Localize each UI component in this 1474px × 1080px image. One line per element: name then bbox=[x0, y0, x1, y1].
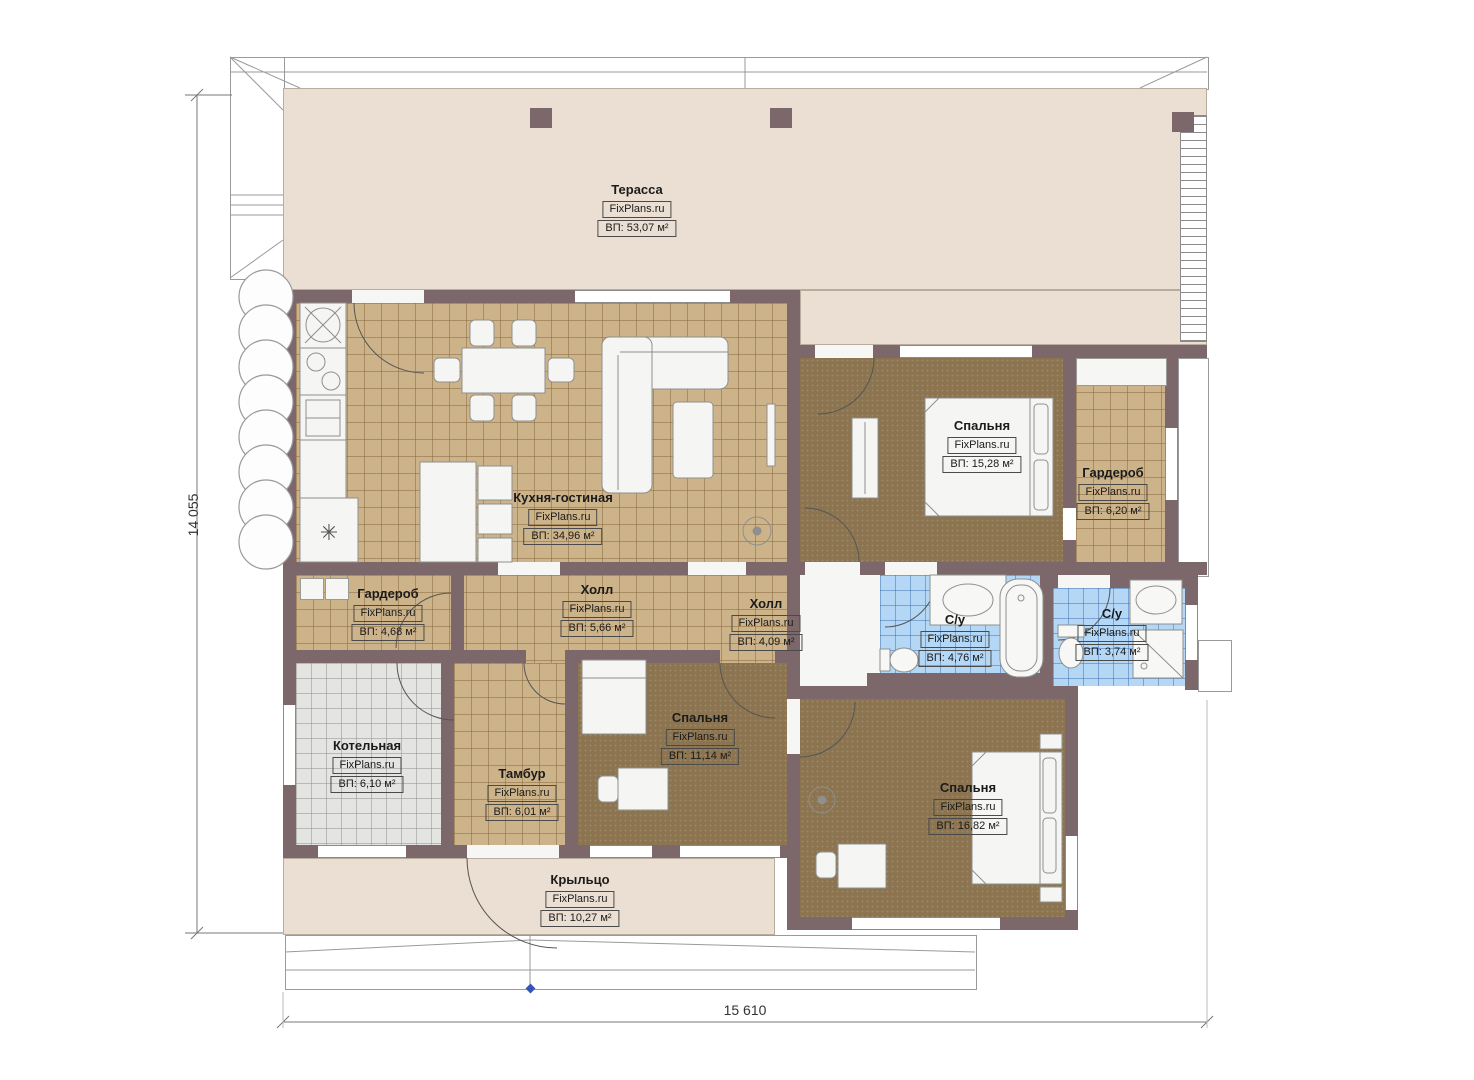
room-area: ВП: 16,82 м² bbox=[928, 818, 1007, 835]
room-name: Холл bbox=[729, 596, 802, 611]
chair-icon bbox=[816, 852, 836, 878]
door-arc-bedroom1 bbox=[818, 358, 874, 414]
bedroom2-furniture bbox=[582, 660, 668, 810]
room-label-terrace: Терасса FixPlans.ru ВП: 53,07 м² bbox=[597, 182, 676, 237]
room-name: Кухня-гостиная bbox=[513, 490, 613, 505]
room-name: Тамбур bbox=[485, 766, 558, 781]
chair-icon bbox=[598, 776, 618, 802]
room-name: Гардероб bbox=[351, 586, 424, 601]
room-name: Котельная bbox=[330, 738, 403, 753]
drawing-overlay: ✳ bbox=[0, 0, 1474, 1080]
room-area: ВП: 5,66 м² bbox=[560, 620, 633, 637]
watermark: FixPlans.ru bbox=[602, 201, 671, 218]
level-marker-icon bbox=[526, 984, 536, 994]
room-label-wardrobe2: Гардероб FixPlans.ru ВП: 4,68 м² bbox=[351, 586, 424, 641]
watermark: FixPlans.ru bbox=[487, 785, 556, 802]
room-name: Холл bbox=[560, 582, 633, 597]
chair-icon bbox=[470, 320, 494, 346]
room-label-hall2: Холл FixPlans.ru ВП: 4,09 м² bbox=[729, 596, 802, 651]
pillow-icon bbox=[1034, 404, 1048, 454]
watermark: FixPlans.ru bbox=[528, 509, 597, 526]
coffee-table-icon bbox=[673, 402, 713, 478]
watermark: FixPlans.ru bbox=[1077, 625, 1146, 642]
room-label-bedroom2: Спальня FixPlans.ru ВП: 11,14 м² bbox=[661, 710, 739, 765]
door-arc-tambour bbox=[524, 663, 565, 704]
toilet-icon bbox=[890, 648, 918, 672]
kitchen-island-icon bbox=[420, 462, 476, 562]
toilet-tank-icon bbox=[880, 649, 890, 671]
room-name: Терасса bbox=[597, 182, 676, 197]
room-area: ВП: 6,10 м² bbox=[330, 776, 403, 793]
room-area: ВП: 15,28 м² bbox=[942, 456, 1021, 473]
room-label-hall1: Холл FixPlans.ru ВП: 5,66 м² bbox=[560, 582, 633, 637]
floor-plan: ✳ bbox=[0, 0, 1474, 1080]
door-arc-bedroom3 bbox=[800, 702, 855, 757]
desk-icon bbox=[838, 844, 886, 888]
room-area: ВП: 4,76 м² bbox=[918, 650, 991, 667]
watermark: FixPlans.ru bbox=[665, 729, 734, 746]
room-area: ВП: 6,20 м² bbox=[1076, 503, 1149, 520]
room-label-porch: Крыльцо FixPlans.ru ВП: 10,27 м² bbox=[540, 872, 619, 927]
room-area: ВП: 3,74 м² bbox=[1075, 644, 1148, 661]
watermark: FixPlans.ru bbox=[920, 631, 989, 648]
room-name: Крыльцо bbox=[540, 872, 619, 887]
room-area: ВП: 4,68 м² bbox=[351, 624, 424, 641]
watermark: FixPlans.ru bbox=[332, 757, 401, 774]
dimension-height: 14 055 bbox=[185, 485, 201, 545]
room-name: Спальня bbox=[661, 710, 739, 725]
door-arc-bedroom1-hall bbox=[805, 508, 859, 562]
dining-table-icon bbox=[462, 348, 545, 393]
room-name: Спальня bbox=[928, 780, 1007, 795]
room-area: ВП: 11,14 м² bbox=[661, 748, 739, 765]
room-label-bedroom3: Спальня FixPlans.ru ВП: 16,82 м² bbox=[928, 780, 1007, 835]
room-label-bedroom1: Спальня FixPlans.ru ВП: 15,28 м² bbox=[942, 418, 1021, 473]
room-label-bath1: С/у FixPlans.ru ВП: 4,76 м² bbox=[918, 612, 991, 667]
room-area: ВП: 10,27 м² bbox=[540, 910, 619, 927]
nightstand-icon bbox=[1040, 734, 1062, 749]
bed-icon bbox=[582, 660, 646, 734]
room-label-bath2: С/у FixPlans.ru ВП: 3,74 м² bbox=[1075, 606, 1148, 661]
room-label-boiler: Котельная FixPlans.ru ВП: 6,10 м² bbox=[330, 738, 403, 793]
room-area: ВП: 34,96 м² bbox=[523, 528, 602, 545]
door-arc-kitchen bbox=[354, 303, 424, 373]
room-name: С/у bbox=[1075, 606, 1148, 621]
room-area: ВП: 6,01 м² bbox=[485, 804, 558, 821]
watermark: FixPlans.ru bbox=[545, 891, 614, 908]
room-name: Гардероб bbox=[1076, 465, 1149, 480]
watermark: FixPlans.ru bbox=[731, 615, 800, 632]
room-area: ВП: 53,07 м² bbox=[597, 220, 676, 237]
watermark: FixPlans.ru bbox=[933, 799, 1002, 816]
room-label-kitchen: Кухня-гостиная FixPlans.ru ВП: 34,96 м² bbox=[513, 490, 613, 545]
boiler-symbol-icon: ✳ bbox=[320, 520, 338, 545]
pillow-icon bbox=[1043, 758, 1056, 813]
room-name: С/у bbox=[918, 612, 991, 627]
room-label-wardrobe1: Гардероб FixPlans.ru ВП: 6,20 м² bbox=[1076, 465, 1149, 520]
tv-icon bbox=[767, 404, 775, 466]
kitchen-counter-icon bbox=[300, 303, 346, 520]
room-name: Спальня bbox=[942, 418, 1021, 433]
watermark: FixPlans.ru bbox=[1078, 484, 1147, 501]
room-area: ВП: 4,09 м² bbox=[729, 634, 802, 651]
dimension-width: 15 610 bbox=[705, 1002, 785, 1018]
desk-icon bbox=[618, 768, 668, 810]
room-label-tambour: Тамбур FixPlans.ru ВП: 6,01 м² bbox=[485, 766, 558, 821]
door-arc-boiler bbox=[397, 663, 454, 720]
shrub-circles-icon bbox=[239, 270, 293, 569]
watermark: FixPlans.ru bbox=[947, 437, 1016, 454]
watermark: FixPlans.ru bbox=[562, 601, 631, 618]
watermark: FixPlans.ru bbox=[353, 605, 422, 622]
